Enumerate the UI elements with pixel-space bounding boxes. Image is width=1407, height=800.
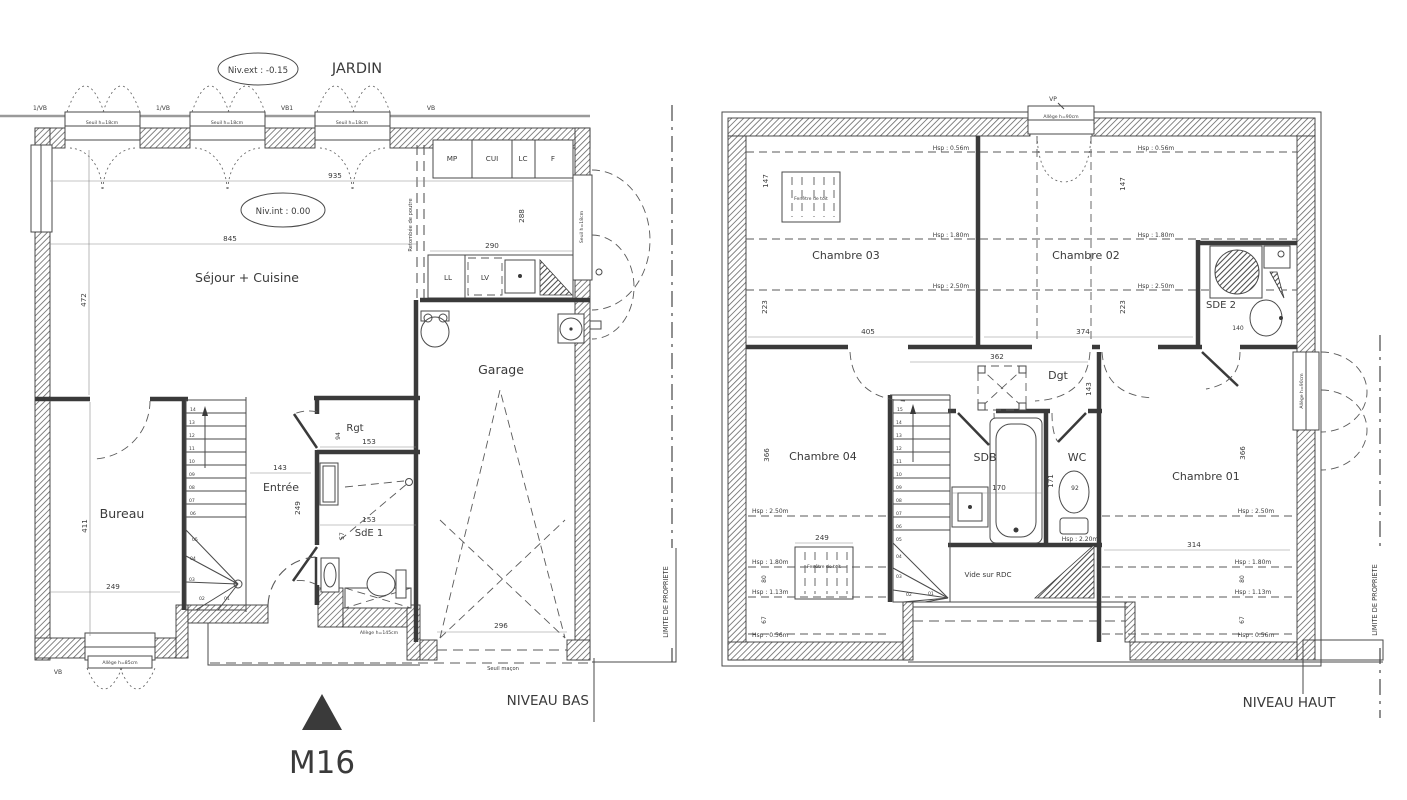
floor-plan-sheet: Seuil h=18cm Seuil h=18cm Seuil h=18cm 1… [0,0,1407,800]
wc-fixture [1059,471,1089,534]
dim-223: 223 [1118,300,1127,314]
svg-text:06: 06 [190,511,196,517]
room-sejour: Séjour + Cuisine [195,270,299,285]
svg-text:06: 06 [896,524,902,530]
dim-223: 223 [760,300,769,314]
hsp-label: Hsp : 1.80m [752,559,789,566]
svg-text:05: 05 [192,537,198,543]
hsp-label: Hsp : 0.56m [1138,145,1175,152]
svg-text:11: 11 [189,446,195,452]
sde1-door-leaf [293,547,317,581]
upper-floor-plan: Allège h=90cm VP Allège h=90cm [592,96,1383,718]
roof-window-label: Fenêtre de toit [794,195,828,202]
dim-153b: 153 [362,515,376,524]
svg-text:05: 05 [896,537,902,543]
svg-text:13: 13 [189,420,195,426]
svg-text:12: 12 [189,433,195,439]
property-limit-left: LIMITE DE PROPRIETE [592,105,676,662]
svg-text:08: 08 [189,485,195,491]
hsp-label: Hsp : 1.13m [1235,589,1272,596]
hsp-label: Hsp : 1.80m [933,232,970,239]
appliance-cui: CUI [486,154,498,163]
roof-window-ch04: Fenêtre de toit 249 [795,533,853,599]
svg-text:01: 01 [224,596,230,602]
svg-text:03: 03 [189,577,195,583]
dim-472: 472 [79,293,88,307]
svg-text:08: 08 [896,498,902,504]
side-door-swing [592,170,650,310]
room-dgt: Dgt [1048,369,1068,382]
svg-text:14: 14 [190,407,196,413]
dim-249b: 249 [293,501,302,515]
dim-405: 405 [861,327,875,336]
dim-147: 147 [1118,177,1127,191]
window-sill-label: Seuil h=18cm [86,120,119,126]
hsp-label: Hsp : 1.80m [1138,232,1175,239]
svg-text:12: 12 [896,446,902,452]
dim-411: 411 [80,519,89,533]
hsp-label: Hsp : 2.50m [1138,283,1175,290]
dim-935: 935 [328,171,342,180]
dim-171: 171 [1046,474,1055,488]
svg-text:02: 02 [906,592,912,598]
svg-text:09: 09 [896,485,902,491]
appliance-ll: LL [444,273,452,282]
svg-text:04: 04 [896,554,902,560]
room-sdb: SDB [974,451,997,464]
roof-window-ch03: Fenêtre de toit [782,172,840,222]
roof-window-label: Fenêtre de toit [807,563,841,570]
svg-text:11: 11 [896,459,902,465]
room-wc: WC [1068,451,1087,464]
level-ext-label: Niv.ext : -0.15 [228,66,288,76]
appliance-lv: LV [481,273,489,282]
ground-floor-plan: Seuil h=18cm Seuil h=18cm Seuil h=18cm 1… [0,53,650,781]
sde2-fixtures [1210,246,1290,336]
porch-outline [208,623,420,665]
room-bureau: Bureau [100,506,145,521]
dim-366: 366 [1238,446,1247,460]
room-sde2: SDE 2 [1206,300,1236,311]
allege145-label: Allège h=145cm [360,629,399,636]
room-ch01: Chambre 01 [1172,470,1240,483]
svg-text:07: 07 [189,498,195,504]
kitchen-lower-counter: LL LV [420,255,590,300]
appliance-f: F [551,154,555,163]
vb-marker: VB [427,105,435,112]
vb-marker: 1/VB [156,105,170,112]
property-limit-right: LIMITE DE PROPRIETE [1371,335,1380,718]
room-ch04: Chambre 04 [789,450,857,463]
uf-outline [722,112,1321,666]
dim-80: 80 [1239,575,1246,583]
niveau-haut-title: NIVEAU HAUT [1243,695,1337,711]
dim-67: 67 [761,616,768,624]
uf-right-window-label: Allège h=90cm [1298,373,1305,409]
room-entree: Entrée [263,481,299,494]
seuil-macon-label: Seuil maçon [487,666,519,672]
svg-text:13: 13 [896,433,902,439]
niveau-bas-title: NIVEAU BAS [507,693,589,709]
sdb-fixtures [952,418,1042,543]
svg-text:15: 15 [897,407,903,413]
hsp-label: Hsp : 0.56m [1238,632,1275,639]
svg-text:10: 10 [189,459,195,465]
property-limit-label: LIMITE DE PROPRIETE [1371,564,1379,636]
dim-170: 170 [992,483,1006,492]
svg-text:01: 01 [928,591,934,597]
compass-label: M16 [289,745,355,781]
dim-143: 143 [273,463,287,472]
dim-140: 140 [1232,325,1244,332]
ch01-door-swing [1102,352,1154,398]
dim-362: 362 [990,352,1004,361]
dim-80: 80 [761,575,768,583]
bureau-door-swing [92,401,150,459]
appliance-mp: MP [447,154,458,163]
svg-text:02: 02 [199,596,205,602]
uf-stair-numbers: 15 14 13 12 11 10 09 08 07 06 05 04 03 0… [896,407,934,598]
wc-door-leaf [1058,413,1086,442]
dim-57: 57 [339,532,346,540]
uf-right-window-swing [1321,352,1367,432]
side-door-sill-label: Seuil h=18cm [579,210,585,243]
dim-374: 374 [1076,327,1090,336]
garden-label: JARDIN [331,61,382,77]
window-sill-label: Seuil h=18cm [211,120,244,126]
appliance-lc: LC [518,154,527,163]
room-ch02: Chambre 02 [1052,249,1120,262]
hsp-label: Hsp : 0.56m [752,632,789,639]
allege90-label: Allège h=90cm [1043,113,1079,120]
sde2-door-leaf [1202,352,1238,386]
dim-147: 147 [761,174,770,188]
svg-text:09: 09 [189,472,195,478]
allege85-label: Allège h=85cm [102,659,138,666]
rgt-door-leaf [294,414,317,448]
dim-143: 143 [1084,382,1093,396]
dim-153a: 153 [362,437,376,446]
vb-marker: VB [54,669,62,676]
vb-marker: 1/VB [33,105,47,112]
room-vide: Vide sur RDC [964,570,1011,579]
ch03-door-swing [850,352,905,401]
dim-288: 288 [517,209,526,223]
hsp-label: Hsp : 0.56m [933,145,970,152]
garage-roof-lines [440,390,565,638]
dim-296: 296 [494,621,508,630]
hsp-label: Hsp : 1.80m [1235,559,1272,566]
dim-290: 290 [485,241,499,250]
room-rgt: Rgt [346,423,363,434]
beam-note: Retombée de poutre [407,198,414,251]
property-limit-label: LIMITE DE PROPRIETE [662,566,670,638]
dim-366: 366 [762,448,771,462]
vb-marker: VB1 [281,105,293,112]
level-int-label: Niv.int : 0.00 [256,207,311,217]
room-ch03: Chambre 03 [812,249,880,262]
plan-drawing: Seuil h=18cm Seuil h=18cm Seuil h=18cm 1… [0,0,1407,800]
dim-249: 249 [815,533,829,542]
window-sill-label: Seuil h=18cm [336,120,369,126]
dim-249a: 249 [106,582,120,591]
svg-text:03: 03 [896,574,902,580]
svg-text:14: 14 [896,420,902,426]
vp-label: VP [1049,96,1057,103]
svg-text:10: 10 [896,472,902,478]
north-arrow [302,694,342,730]
dim-92: 92 [1071,485,1079,492]
dim-314: 314 [1187,540,1201,549]
dim-845: 845 [223,234,237,243]
hsp-label: Hsp : 2.50m [933,283,970,290]
room-sde1: SdE 1 [355,528,384,539]
dim-67: 67 [1239,616,1246,624]
hsp-label: Hsp : 1.13m [752,589,789,596]
room-garage: Garage [478,362,524,377]
hsp-label: Hsp : 2.50m [1238,508,1275,515]
sloped-ceiling-hatch [1035,545,1094,598]
hsp-label: Hsp : 2.50m [752,508,789,515]
dim-94: 94 [335,432,342,440]
gf-stairs [186,400,246,610]
duct-shaft [978,366,1026,410]
svg-text:04: 04 [190,556,196,562]
sdb-door-leaf [958,413,989,445]
gf-exterior-walls [35,128,590,660]
kitchen-upper-cabinets: MP CUI LC F [433,140,573,178]
svg-text:07: 07 [896,511,902,517]
hsp-label: Hsp : 2.20m [1062,536,1099,543]
